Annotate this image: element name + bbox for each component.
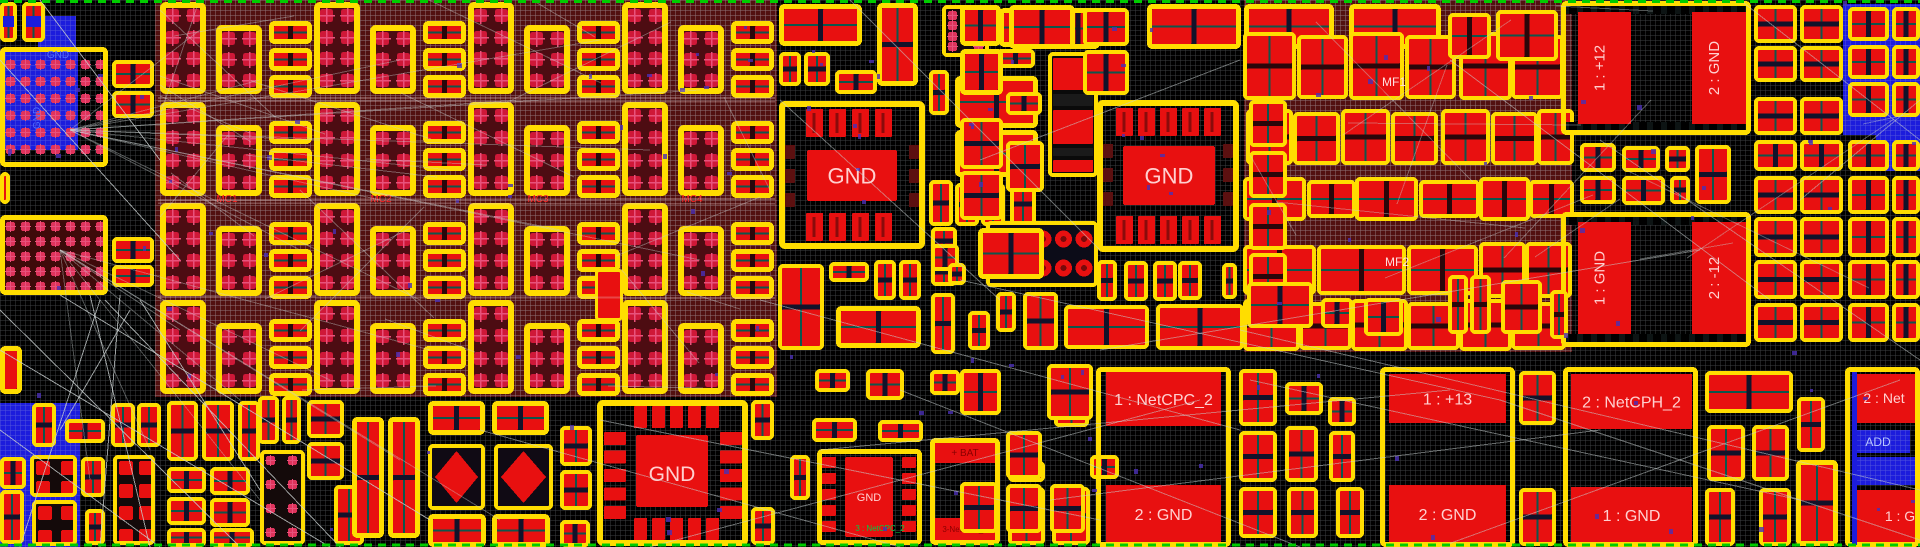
svg-text:1 : G: 1 : G xyxy=(1885,508,1915,524)
svg-text:1 : +13: 1 : +13 xyxy=(1423,391,1472,408)
svg-text:GND: GND xyxy=(828,163,877,188)
svg-text:2 : GND: 2 : GND xyxy=(1419,507,1477,524)
svg-text:MF1: MF1 xyxy=(1382,75,1406,89)
svg-text:ADD: ADD xyxy=(1865,435,1891,449)
svg-text:1 : GND: 1 : GND xyxy=(1592,251,1609,305)
svg-text:3 : NetCPC_2: 3 : NetCPC_2 xyxy=(855,524,905,533)
svg-text:2 : Net: 2 : Net xyxy=(1863,390,1904,406)
svg-text:1 : +12: 1 : +12 xyxy=(1592,45,1609,91)
svg-text:GND: GND xyxy=(32,107,43,129)
svg-text:GND: GND xyxy=(1145,163,1194,188)
svg-text:2 : GND: 2 : GND xyxy=(1706,41,1723,95)
svg-text:+ BAT: + BAT xyxy=(951,448,978,459)
svg-text:2 : NetCPH_2: 2 : NetCPH_2 xyxy=(1582,394,1681,411)
svg-text:GND: GND xyxy=(47,50,69,61)
svg-text:2 : GND: 2 : GND xyxy=(1135,507,1193,524)
svg-text:GND: GND xyxy=(857,492,882,504)
svg-text:1 : GND: 1 : GND xyxy=(1603,508,1661,525)
svg-text:GND: GND xyxy=(649,463,696,486)
svg-text:MF2: MF2 xyxy=(1385,255,1409,269)
